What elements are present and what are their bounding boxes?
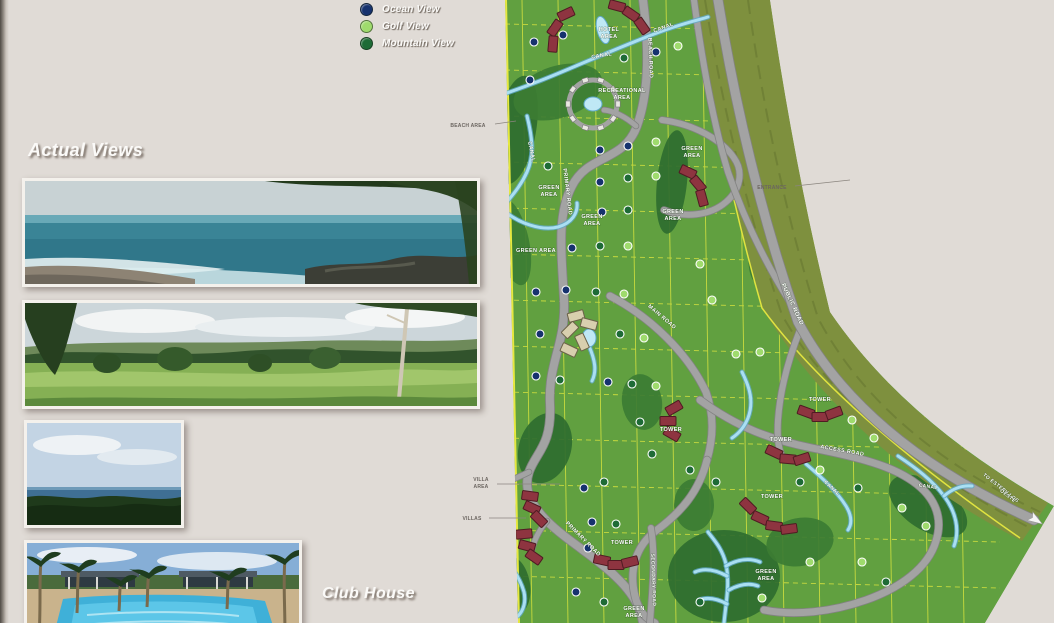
lot-badge-o [568,244,576,252]
annotation-label: AREA [474,484,489,490]
lot-badge-g [674,42,682,50]
lot-badge-g [922,522,930,530]
lot-badge-m [544,162,552,170]
residential-building [516,529,533,539]
ocean-beach-photo [22,178,480,287]
lot-badge-g [758,594,766,602]
lot-badge-m [882,578,890,586]
annotation-label: ENTRANCE [757,185,787,191]
map-label: AREA [584,221,601,227]
lot-badge-m [616,330,624,338]
lot-badge-o [526,76,534,84]
lot-badge-o [530,38,538,46]
lot-badge-o [532,288,540,296]
ocean-horizon-photo [24,420,184,528]
annotation-label: VILLA [473,477,489,483]
lot-badge-o [588,518,596,526]
legend-label: Mountain View [382,38,454,49]
map-label: TOWER [611,540,633,546]
lot-badge-o [559,31,567,39]
mountain-pasture-photo [22,300,480,409]
lot-badge-g [652,138,660,146]
map-label: GREEN [623,606,644,612]
lot-badge-m [600,598,608,606]
lot-badge-m [796,478,804,486]
lot-badge-m [600,478,608,486]
lot-badge-g [858,558,866,566]
annotation-label: BEACH AREA [450,123,485,129]
view-legend: Ocean ViewGolf ViewMountain View [360,1,454,52]
map-label: GREEN AREA [516,248,556,254]
lot-badge-m [624,206,632,214]
lot-badge-o [536,330,544,338]
lot-badge-m [636,418,644,426]
lot-badge-m [556,376,564,384]
lot-badge-g [624,242,632,250]
map-label: AREA [601,34,618,40]
residential-building [521,490,538,501]
annotation-label: VILLAS [463,516,482,522]
recreational-pond [584,97,602,111]
lot-badge-o [624,142,632,150]
lot-badge-g [756,348,764,356]
legend-item-golf-view: Golf View [360,18,454,35]
map-label: AREA [684,153,701,159]
lot-badge-o [604,378,612,386]
map-label: TOWER [660,427,682,433]
legend-item-ocean-view: Ocean View [360,1,454,18]
m-view-dot-icon [360,37,373,50]
map-label: TOWER [809,397,831,403]
map-label: AREA [626,613,643,619]
map-label: GREEN [538,185,559,191]
lot-badge-o [562,286,570,294]
legend-label: Ocean View [382,4,440,15]
lot-badge-g [696,260,704,268]
club-house-title: Club House [322,585,415,603]
residential-building [548,36,558,53]
residential-building [660,417,676,426]
map-label: HOTEL [599,27,620,33]
residential-building [780,523,797,534]
lot-badge-g [640,334,648,342]
o-view-dot-icon [360,3,373,16]
lot-badge-m [628,380,636,388]
lot-badge-o [596,178,604,186]
map-label: AREA [614,95,631,101]
page-edge-line [0,0,9,623]
map-label: TOWER [770,437,792,443]
lot-badge-m [620,54,628,62]
lot-badge-g [652,382,660,390]
lot-badge-m [596,242,604,250]
lot-badge-g [848,416,856,424]
lot-badge-o [572,588,580,596]
legend-label: Golf View [382,21,429,32]
lot-badge-g [732,350,740,358]
lot-badge-g [620,290,628,298]
lot-badge-o [532,372,540,380]
lot-badge-m [696,598,704,606]
map-label: AREA [541,192,558,198]
lot-badge-g [816,466,824,474]
lot-badge-m [624,174,632,182]
legend-item-mountain-view: Mountain View [360,35,454,52]
lot-badge-o [580,484,588,492]
map-label: AREA [665,216,682,222]
map-label: GREEN [681,146,702,152]
map-label: RECREATIONAL [598,88,646,94]
map-label: GREEN [581,214,602,220]
map-label: AREA [758,576,775,582]
actual-views-title: Actual Views [28,140,143,161]
lot-badge-m [612,520,620,528]
brochure-page: HOTELAREACANALCANALRECREATIONALAREABEACH… [0,0,1054,623]
lot-badge-g [870,434,878,442]
club-house-pool-photo [24,540,302,623]
lot-badge-m [712,478,720,486]
lot-badge-g [898,504,906,512]
g-view-dot-icon [360,20,373,33]
map-label: TOWER [761,494,783,500]
lot-badge-m [686,466,694,474]
map-label: GREEN [755,569,776,575]
lot-badge-g [806,558,814,566]
lot-badge-o [596,146,604,154]
lot-badge-m [648,450,656,458]
lot-badge-m [592,288,600,296]
lot-badge-m [854,484,862,492]
lot-badge-g [652,172,660,180]
map-label: GREEN [662,209,683,215]
lot-badge-g [708,296,716,304]
residential-building [765,520,782,531]
